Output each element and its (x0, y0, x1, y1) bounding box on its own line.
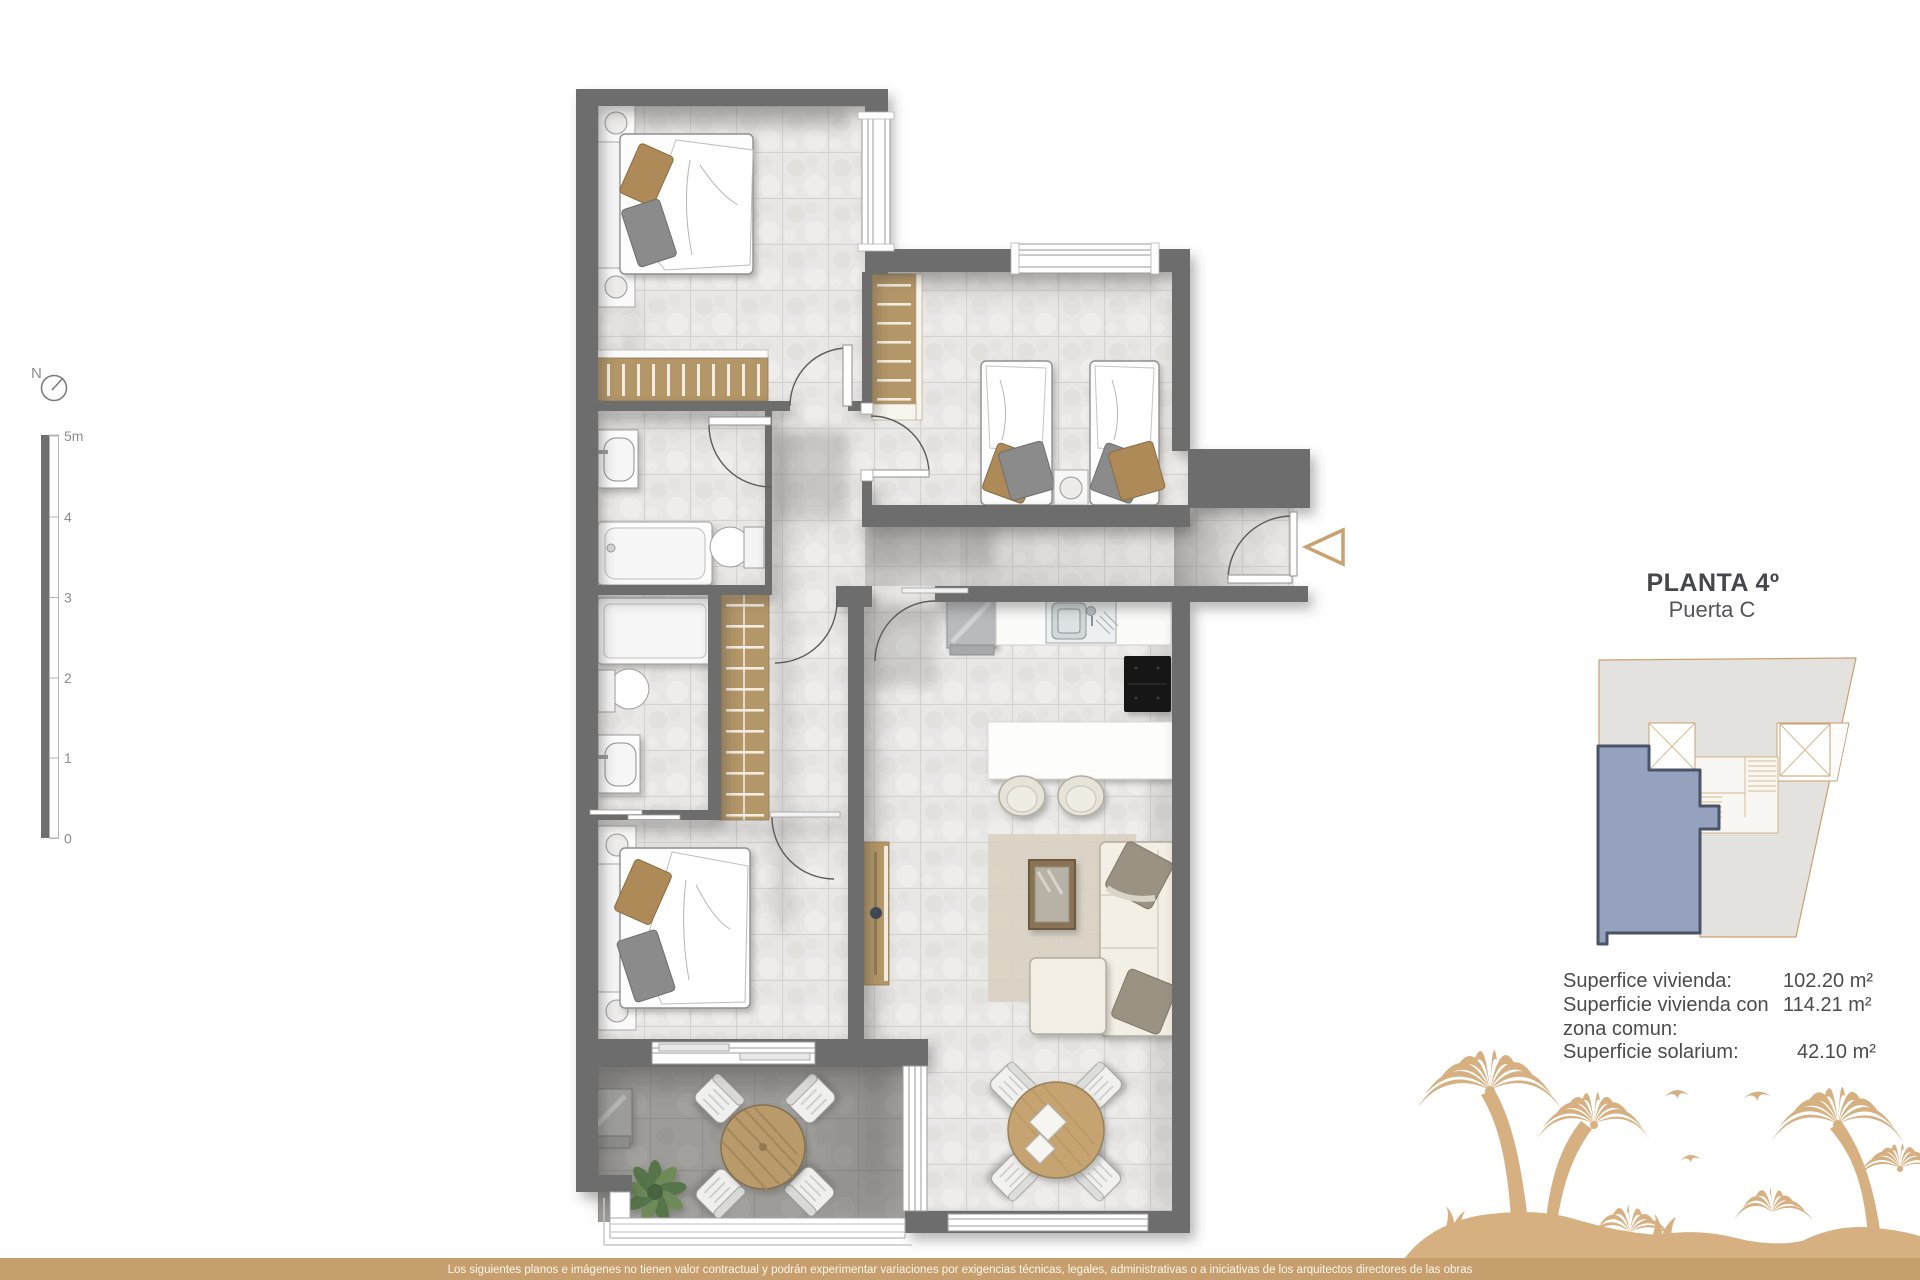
svg-text:0: 0 (64, 831, 72, 847)
svg-text:zona comun:: zona comun: (1563, 1018, 1678, 1040)
svg-text:4: 4 (64, 509, 72, 525)
svg-text:Superficie vivienda con: Superficie vivienda con (1563, 994, 1769, 1016)
svg-text:42.10 m²: 42.10 m² (1797, 1041, 1876, 1063)
svg-text:Superfice vivienda:: Superfice vivienda: (1563, 970, 1732, 992)
svg-text:Los siguientes planos e imágen: Los siguientes planos e imágenes no tien… (448, 1264, 1473, 1276)
svg-text:5m: 5m (64, 428, 83, 444)
svg-text:PLANTA 4º: PLANTA 4º (1646, 569, 1779, 597)
svg-text:102.20 m²: 102.20 m² (1783, 970, 1873, 992)
svg-text:114.21 m²: 114.21 m² (1783, 994, 1872, 1016)
svg-text:Puerta C: Puerta C (1669, 597, 1756, 622)
svg-text:2: 2 (64, 670, 72, 686)
svg-text:1: 1 (64, 750, 72, 766)
svg-text:Superficie solarium:: Superficie solarium: (1563, 1041, 1739, 1063)
svg-text:3: 3 (64, 590, 72, 606)
svg-text:N: N (31, 365, 42, 382)
